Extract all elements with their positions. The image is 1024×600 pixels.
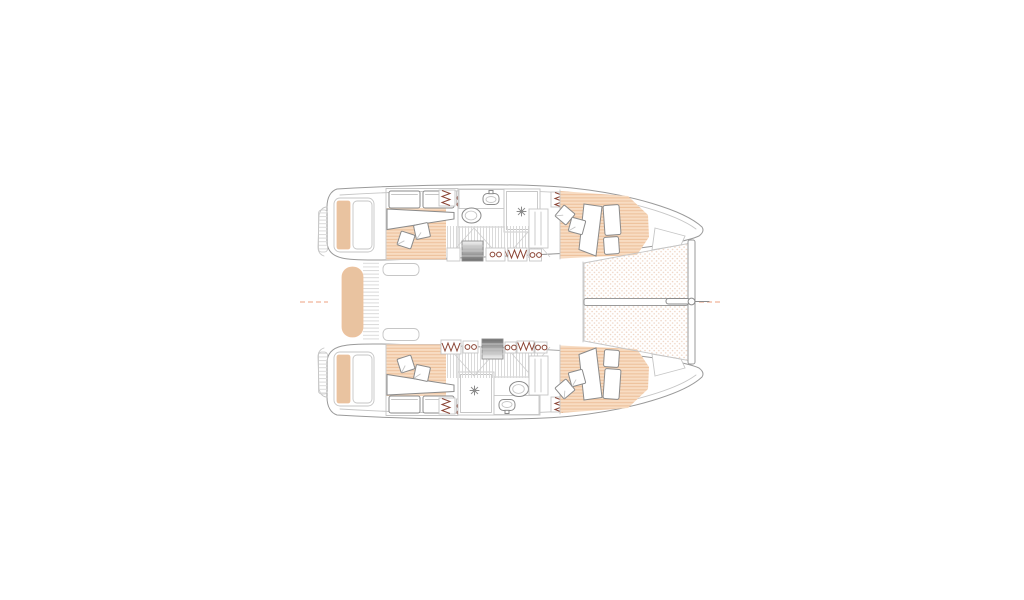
berth-mattress bbox=[603, 368, 621, 399]
shower-stall bbox=[458, 372, 494, 415]
hanging-locker bbox=[447, 248, 460, 261]
catamaran-deck-plan bbox=[0, 0, 1024, 600]
locker-unit bbox=[505, 342, 516, 353]
louver-cabinet bbox=[529, 356, 548, 395]
starboard-transom-peach-step bbox=[337, 355, 350, 403]
shower-drain bbox=[470, 386, 479, 395]
bowsprit bbox=[666, 299, 690, 305]
port-transom-peach-step bbox=[337, 201, 350, 249]
shower-drain bbox=[517, 207, 526, 216]
bridge-deck bbox=[342, 262, 583, 342]
berth-mattress bbox=[389, 396, 420, 413]
cockpit-bench bbox=[342, 267, 363, 337]
locker-unit bbox=[530, 249, 542, 261]
pillow bbox=[568, 217, 586, 235]
locker-unit bbox=[486, 248, 505, 261]
starboard-transom-platform bbox=[334, 352, 374, 406]
berth-mattress bbox=[603, 236, 619, 254]
starboard-bathroom bbox=[458, 372, 540, 415]
forestay-fitting bbox=[688, 298, 695, 305]
cockpit-seat bbox=[383, 329, 419, 341]
foredeck bbox=[584, 240, 709, 364]
toilet bbox=[510, 382, 529, 397]
berth-mattress bbox=[603, 204, 621, 235]
screenshot-root bbox=[0, 0, 1024, 600]
berth-mattress bbox=[603, 349, 619, 367]
toilet bbox=[462, 208, 481, 223]
pillow bbox=[413, 222, 430, 239]
companionway-stairs bbox=[482, 339, 503, 359]
port-transom-white-step bbox=[353, 201, 372, 249]
port-outboard-steps bbox=[319, 210, 328, 252]
locker-unit bbox=[535, 342, 547, 353]
starboard-outboard-steps bbox=[319, 352, 328, 394]
boarding-steps bbox=[363, 262, 379, 342]
louver-cabinet bbox=[529, 209, 548, 248]
starboard-transom-white-step bbox=[353, 355, 372, 403]
companionway-stairs bbox=[462, 241, 483, 261]
berth-mattress bbox=[389, 191, 420, 208]
pillow bbox=[568, 369, 586, 387]
pillow bbox=[413, 364, 430, 381]
cockpit-seat bbox=[383, 264, 419, 276]
port-transom-platform bbox=[334, 198, 374, 252]
port-hull bbox=[318, 185, 703, 261]
port-bathroom bbox=[458, 189, 540, 232]
